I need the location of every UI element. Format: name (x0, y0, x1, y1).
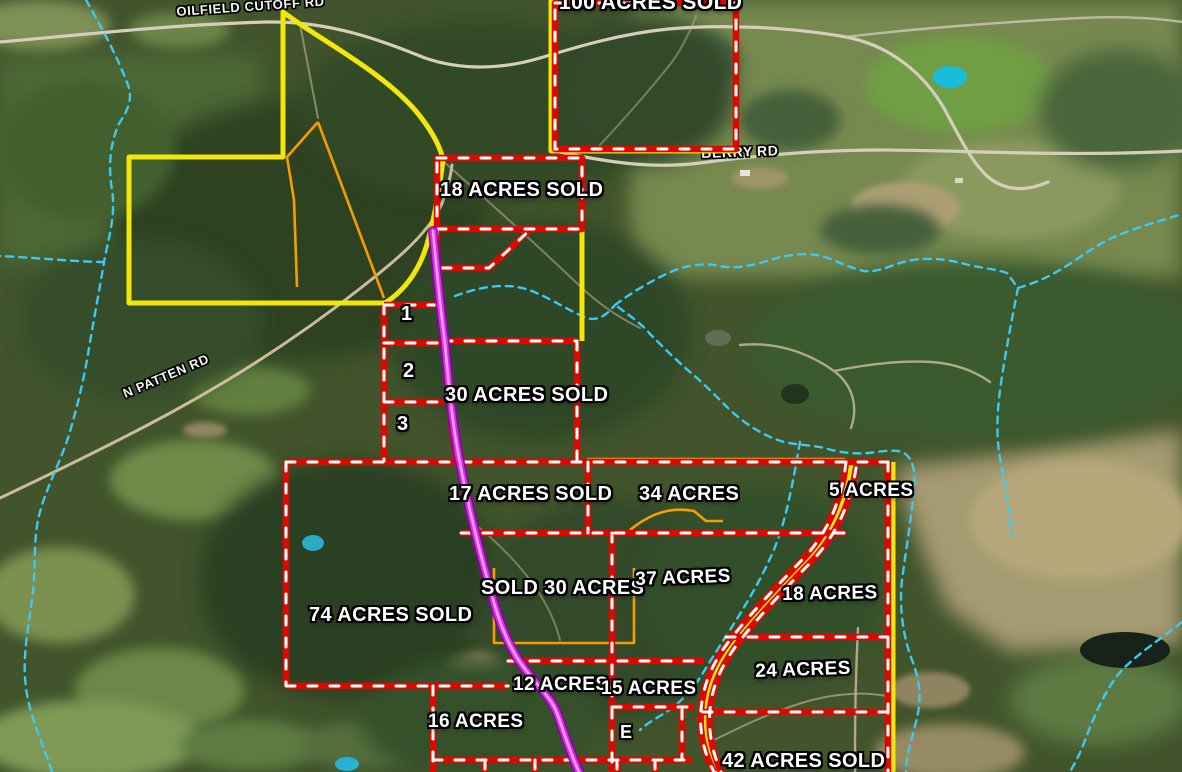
stream-paths (0, 0, 1182, 772)
parcel-boundaries (286, 3, 888, 772)
boundary-orange-paths (287, 122, 845, 643)
boundary-overlay-layer (0, 0, 1182, 772)
highlighted-road-path (433, 231, 579, 772)
map-canvas[interactable]: OILFIELD CUTOFF RD BERRY RD N PATTEN RD (0, 0, 1182, 772)
